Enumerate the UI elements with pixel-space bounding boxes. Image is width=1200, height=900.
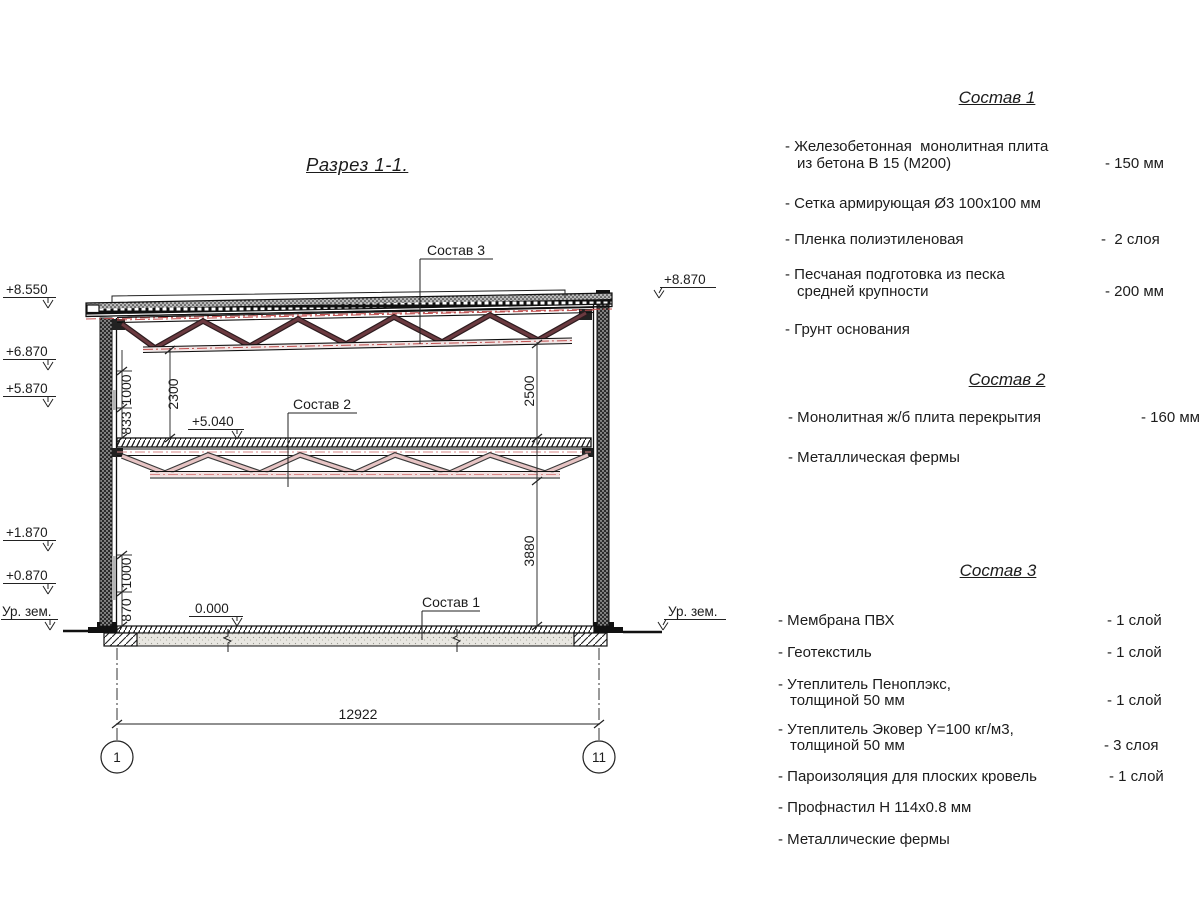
section-header-sostav1: Состав 1 (959, 88, 1036, 108)
item-value: - 1 слой (1107, 692, 1162, 709)
dim-1000-lower: 1000 (118, 557, 134, 588)
footing-right (574, 633, 607, 646)
mark-5040: +5.040 (188, 414, 244, 439)
wall-right (594, 290, 611, 626)
roof (86, 290, 612, 319)
dim-1000-upper: 1000 (118, 374, 134, 405)
list-item: - Пленка полиэтиленовая (785, 231, 964, 248)
section-header-sostav2: Состав 2 (969, 370, 1046, 390)
axis-label-1: 1 (113, 750, 121, 765)
item-value: - 2 слоя (1101, 231, 1160, 248)
mark-8870: +8.870 (654, 272, 716, 298)
mark-ur-zem-right: Ур. зем. (658, 604, 726, 630)
svg-text:+5.870: +5.870 (6, 381, 48, 396)
svg-text:+8.550: +8.550 (6, 282, 48, 297)
axis-label-11: 11 (592, 750, 606, 765)
ground-slab (63, 622, 662, 652)
dimension-texts: 1000 833 2300 2500 1000 870 3880 12922 1… (113, 374, 606, 765)
building-section (63, 290, 662, 652)
svg-text:Ур. зем.: Ур. зем. (2, 604, 52, 619)
list-item: - Сетка армирующая Ø3 100х100 мм (785, 195, 1041, 212)
list-item: - Утеплитель Пеноплэкс, (778, 676, 951, 693)
section-drawing: 1000 833 2300 2500 1000 870 3880 12922 1… (0, 0, 760, 900)
mark-ur-zem-left: Ур. зем. (1, 604, 58, 630)
section-header-sostav3: Состав 3 (960, 561, 1037, 581)
svg-text:+1.870: +1.870 (6, 525, 48, 540)
svg-text:+6.870: +6.870 (6, 344, 48, 359)
composition-panel: Состав 1 - Железобетонная монолитная пли… (760, 0, 1200, 900)
list-item: - Утеплитель Эковер Y=100 кг/м3, (778, 721, 1014, 738)
item-value: - 1 слой (1107, 644, 1162, 661)
item-value: - 3 слоя (1104, 737, 1159, 754)
drawing-sheet: Разрез 1-1. (0, 0, 1200, 900)
list-item: - Железобетонная монолитная плита (785, 138, 1048, 155)
mark-0870: +0.870 (3, 568, 56, 594)
footing-left (104, 633, 137, 646)
svg-text:Состав 1: Состав 1 (422, 594, 480, 610)
list-item: толщиной 50 мм (790, 737, 905, 754)
list-item: - Металлические фермы (778, 831, 950, 848)
svg-text:+8.870: +8.870 (664, 272, 706, 287)
list-item: - Песчаная подготовка из песка (785, 266, 1005, 283)
svg-text:0.000: 0.000 (195, 601, 229, 616)
svg-text:Состав 3: Состав 3 (427, 242, 485, 258)
dim-3880: 3880 (521, 535, 537, 566)
dim-2500: 2500 (521, 375, 537, 406)
eave-box (87, 305, 99, 313)
svg-text:Состав 2: Состав 2 (293, 396, 351, 412)
dim-833: 833 (118, 411, 134, 435)
mark-1870: +1.870 (3, 525, 56, 551)
list-item: - Профнастил Н 114х0.8 мм (778, 799, 971, 816)
dim-870: 870 (118, 598, 134, 622)
list-item: средней крупности (797, 283, 929, 300)
item-value: - 150 мм (1105, 155, 1164, 172)
mark-5870: +5.870 (3, 381, 56, 407)
item-value: - 200 мм (1105, 283, 1164, 300)
list-item: толщиной 50 мм (790, 692, 905, 709)
dim-overall: 12922 (339, 706, 378, 722)
svg-text:+5.040: +5.040 (192, 414, 234, 429)
list-item: - Монолитная ж/б плита перекрытия (788, 409, 1041, 426)
item-value: - 160 мм (1141, 409, 1200, 426)
list-item: - Мембрана ПВХ (778, 612, 895, 629)
list-item: из бетона В 15 (М200) (797, 155, 951, 172)
mark-8550: +8.550 (3, 282, 56, 308)
mark-0000: 0.000 (189, 601, 243, 626)
leader-sostav3: Состав 3 (420, 242, 493, 344)
dim-2300: 2300 (165, 378, 181, 409)
floor-slab-5040 (117, 438, 591, 447)
svg-text:+0.870: +0.870 (6, 568, 48, 583)
item-value: - 1 слой (1107, 612, 1162, 629)
wall-left (100, 318, 117, 626)
list-item: - Грунт основания (785, 321, 910, 338)
list-item: - Пароизоляция для плоских кровель (778, 768, 1037, 785)
item-value: - 1 слой (1109, 768, 1164, 785)
truss-lower (112, 448, 593, 478)
mark-6870: +6.870 (3, 344, 56, 370)
svg-text:Ур. зем.: Ур. зем. (668, 604, 718, 619)
list-item: - Металлическая фермы (788, 449, 960, 466)
list-item: - Геотекстиль (778, 644, 872, 661)
